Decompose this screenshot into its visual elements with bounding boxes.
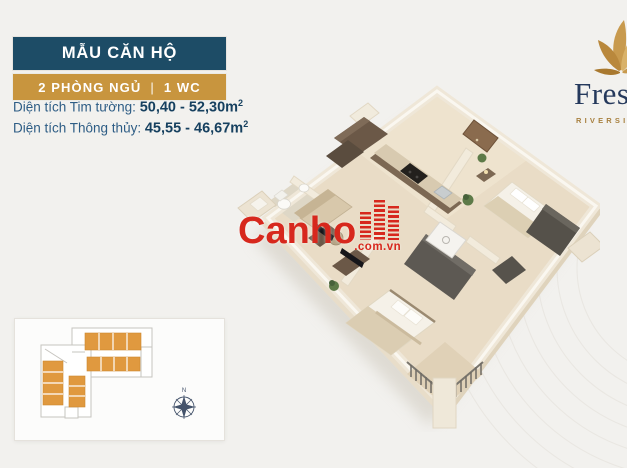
net-area-value: 45,55 - 46,67m [145, 121, 243, 137]
net-area-label: Diện tích Thông thủy: [13, 121, 145, 136]
wc-count-label: 1 WC [164, 80, 201, 95]
lotus-flower-icon [588, 12, 627, 76]
apartment-model-title: MẪU CĂN HỘ [62, 44, 177, 63]
site-plan-diagram: N [15, 319, 224, 440]
floorplan-3d-render [230, 80, 600, 432]
bedroom-count-label: 2 PHÒNG NGỦ [38, 80, 141, 95]
apartment-poster: MẪU CĂN HỘ 2 PHÒNG NGỦ | 1 WC Diện tích … [0, 0, 627, 468]
gross-area-line: Diện tích Tim tường: 50,40 - 52,30m2 [13, 95, 248, 116]
separator: | [150, 80, 154, 95]
gross-area-value: 50,40 - 52,30m [140, 100, 238, 116]
area-info: Diện tích Tim tường: 50,40 - 52,30m2 Diệ… [13, 95, 248, 137]
compass-icon: N [172, 388, 196, 419]
site-plan-panel: N [14, 318, 225, 441]
gross-area-label: Diện tích Tim tường: [13, 100, 140, 115]
net-area-line: Diện tích Thông thủy: 45,55 - 46,67m2 [13, 116, 248, 137]
banner-apartment-model: MẪU CĂN HỘ [13, 37, 226, 70]
highlighted-units [43, 333, 141, 407]
compass-north-label: N [182, 388, 186, 394]
